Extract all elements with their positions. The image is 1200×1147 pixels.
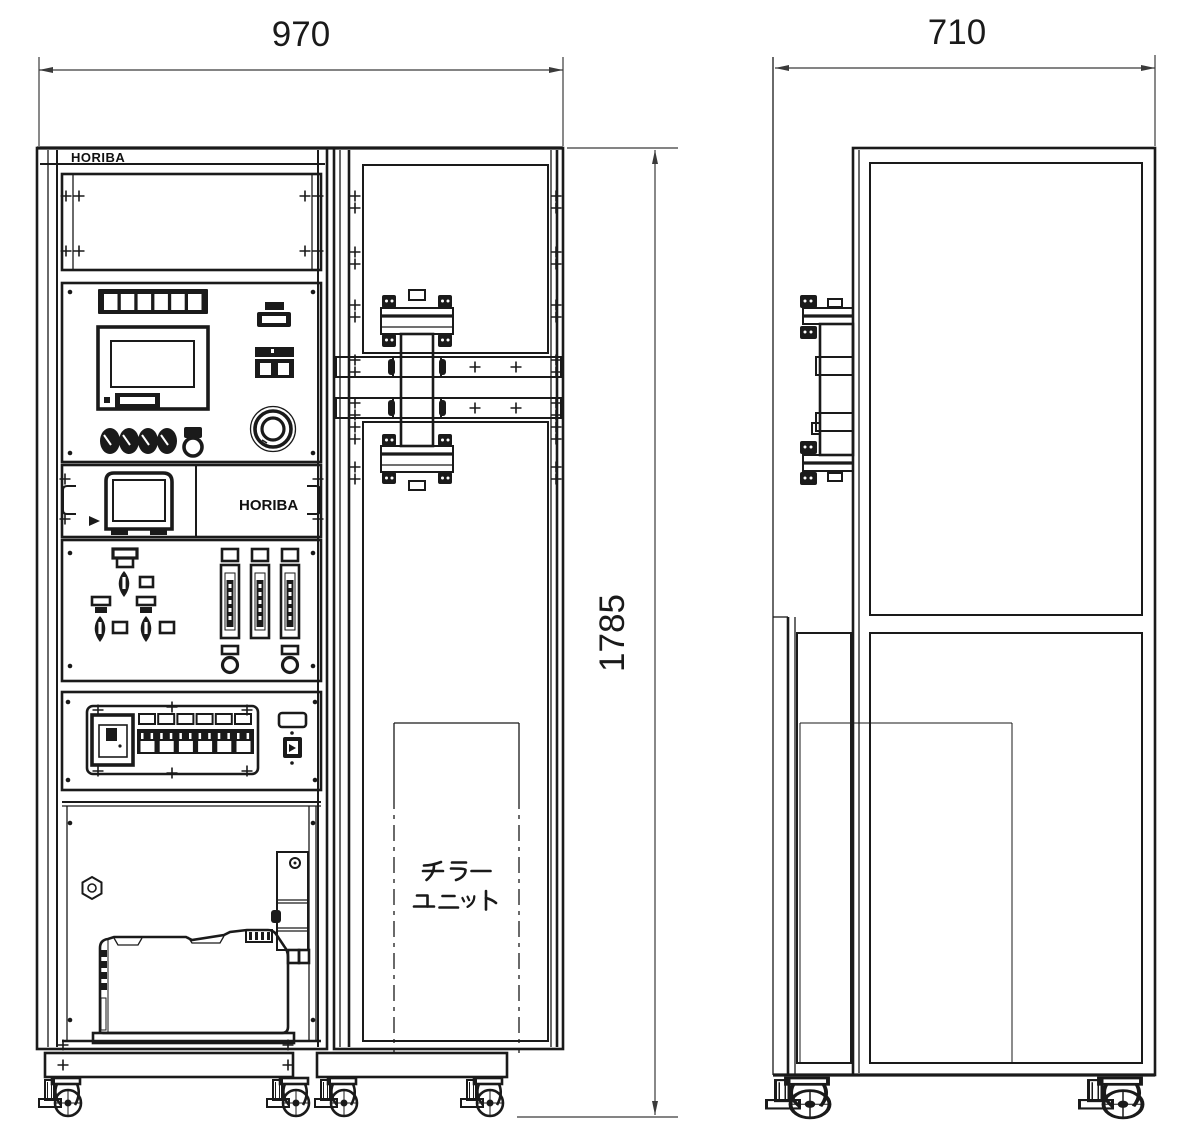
lcd-screen (111, 341, 194, 387)
main-breaker (92, 715, 133, 765)
dim-label-970: 970 (272, 15, 330, 54)
flowmeter-3 (281, 549, 299, 638)
power-indicator-icon (89, 516, 100, 526)
power-switch (279, 713, 306, 765)
instrument-rack: HORIBA (37, 148, 327, 1051)
valve-mid (137, 597, 155, 642)
port-2 (283, 658, 298, 673)
pipe-flange-assembly-front (381, 290, 453, 490)
side-frame (853, 148, 1155, 1075)
caster (315, 1078, 357, 1116)
pipe-joint-1 (388, 357, 446, 377)
pipe-joint-2 (388, 398, 446, 418)
control-panel (62, 283, 321, 462)
base-left (45, 1053, 294, 1077)
base-right (317, 1053, 507, 1077)
caster (1080, 1078, 1143, 1118)
pipe (401, 334, 433, 446)
breaker-row (137, 729, 254, 754)
dim-depth-710: 710 (775, 13, 1155, 146)
control-knobs (100, 428, 177, 454)
front-casters (39, 1078, 503, 1116)
port-label-1 (222, 646, 238, 654)
dim-label-1785: 1785 (593, 594, 632, 672)
fitting-label (140, 577, 153, 587)
terminal-row (139, 714, 251, 724)
fitting-label (113, 622, 127, 633)
port-1 (223, 658, 238, 673)
flange-top (381, 290, 453, 347)
caster (39, 1078, 81, 1116)
pipe-flange-assembly-side (800, 295, 853, 485)
emergency-stop-button (251, 407, 296, 452)
dim-width-970: 970 (39, 15, 563, 146)
door-lower (363, 422, 548, 1041)
blank-rack-panel (61, 174, 324, 270)
panel-latch (184, 427, 202, 456)
breaker-panel (62, 692, 321, 790)
valve-left (92, 597, 110, 642)
function-keypad (98, 289, 208, 314)
horiba-logo-text: HORIBA (71, 150, 125, 165)
lcd-display (98, 327, 208, 409)
chiller-unit-label: チラー ユニット (386, 845, 526, 916)
pump-connector (299, 950, 309, 963)
technical-drawing-page: 970 710 1785 HORIBA (0, 0, 1200, 1147)
door-screw-marks (350, 191, 562, 485)
side-view (767, 57, 1156, 1118)
analyzer-monitor (106, 473, 172, 535)
dim-height-1785: 1785 (517, 148, 678, 1117)
valve-top (113, 549, 137, 597)
hex-fitting (83, 877, 102, 899)
side-panel-lower-left (797, 633, 851, 1063)
caster (767, 1078, 830, 1118)
chiller-side-outline (800, 723, 1012, 1063)
fitting-label (160, 622, 174, 633)
port-label-2 (282, 646, 298, 654)
lower-compartment (58, 802, 322, 1051)
pump-connector (288, 950, 299, 963)
connector-a (257, 302, 291, 327)
side-panel-lower-right (870, 633, 1142, 1063)
front-view: HORIBA (37, 148, 563, 1116)
mounting-rail-1 (336, 357, 561, 377)
side-panel-upper (870, 163, 1142, 615)
gas-valve-panel (62, 540, 321, 681)
analyzer-horiba-label: HORIBA (239, 497, 298, 514)
equipment-outline-drawing: 970 710 1785 HORIBA (0, 0, 1200, 1147)
side-casters (767, 1078, 1143, 1118)
mounting-rail-2 (336, 398, 561, 418)
flowmeter-1 (221, 549, 239, 638)
door-upper (363, 165, 548, 353)
connector-b (255, 347, 294, 378)
pipe (820, 324, 853, 455)
flange-bottom (381, 434, 453, 490)
screw-marks (61, 191, 324, 257)
analyzer-section: HORIBA (60, 465, 324, 537)
dim-label-710: 710 (928, 13, 986, 52)
caster (461, 1078, 503, 1116)
caster (267, 1078, 309, 1116)
flowmeter-2 (251, 549, 269, 638)
